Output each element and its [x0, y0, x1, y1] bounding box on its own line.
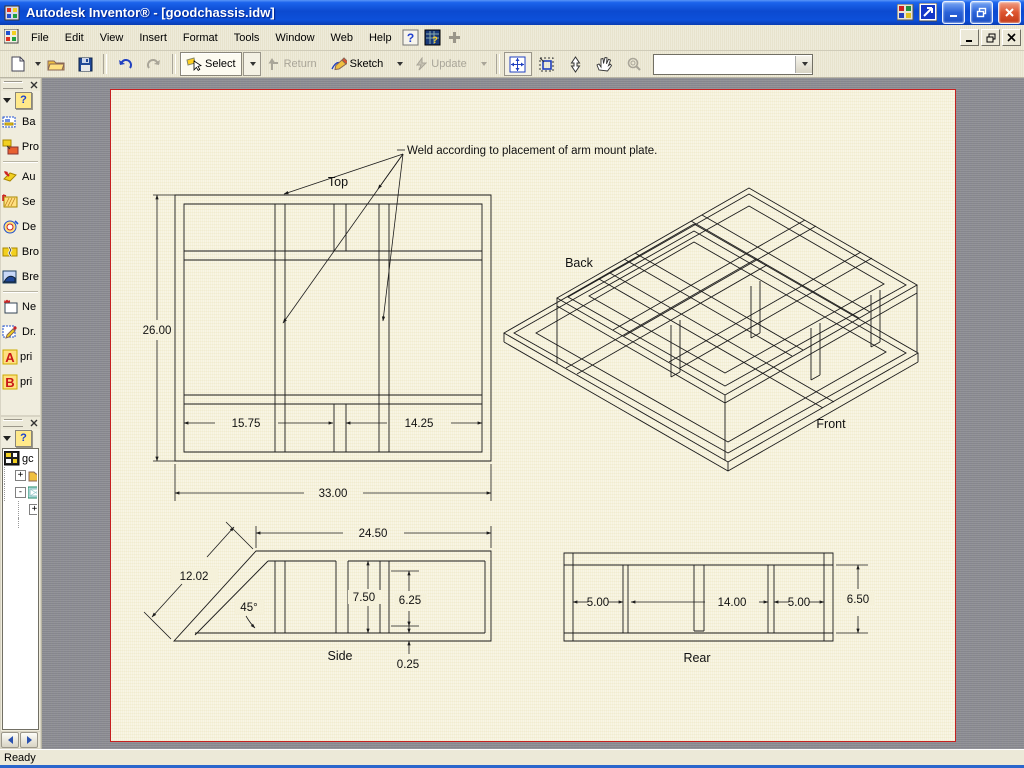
update-button[interactable]: Update: [409, 52, 472, 76]
document-icon[interactable]: [4, 29, 19, 47]
tree-node-sheet[interactable]: -: [4, 484, 37, 501]
dim-0-25: 0.25: [397, 659, 419, 671]
collapse-icon[interactable]: -: [15, 487, 26, 498]
top-view-geometry: [175, 195, 491, 461]
tool-auxiliary-view[interactable]: Au: [1, 164, 40, 189]
dim-26: 26.00: [143, 325, 172, 337]
mdi-close-button[interactable]: [1002, 29, 1021, 46]
pan-hand-icon: [596, 56, 613, 72]
panel-divider: [3, 161, 38, 162]
new-sheet-icon: [2, 299, 20, 315]
open-folder-icon: [47, 57, 65, 71]
panel-subheader: ?: [1, 429, 40, 447]
update-dropdown[interactable]: [474, 52, 492, 76]
restore-button[interactable]: [970, 1, 993, 24]
browser-panel: ? gc + -: [0, 416, 41, 749]
menu-edit[interactable]: Edit: [57, 29, 92, 47]
mdi-minimize-button[interactable]: [960, 29, 979, 46]
graphics-canvas[interactable]: 26.00 15.75 14.25 33.00 Top Weld accordi…: [42, 78, 1024, 749]
window-title: Autodesk Inventor® - [goodchassis.idw]: [26, 5, 891, 20]
sketch-pencil-icon: [330, 57, 347, 72]
detail-view-icon: [2, 219, 20, 235]
tool-breakout-view[interactable]: Bre: [1, 264, 40, 289]
zoom-all-icon: [509, 56, 526, 73]
update-label: Update: [431, 58, 466, 70]
new-file-button[interactable]: [4, 52, 32, 76]
save-floppy-icon: [78, 57, 93, 72]
redo-icon: [146, 57, 162, 71]
update-lightning-icon: [415, 57, 428, 71]
menu-tools[interactable]: Tools: [226, 29, 268, 47]
folder-icon: [28, 470, 37, 482]
dim-24-50: 24.50: [359, 528, 388, 540]
panel-subheader: ?: [1, 91, 40, 109]
dim-12-02: 12.02: [180, 571, 209, 583]
dim-6-25: 6.25: [399, 595, 421, 607]
zoom-select-icon: [626, 56, 642, 72]
select-dropdown[interactable]: [243, 52, 261, 76]
notebook-icon[interactable]: ?: [423, 28, 443, 47]
return-button[interactable]: Return: [262, 52, 323, 76]
dim-14-25: 14.25: [405, 418, 434, 430]
combo-dropdown[interactable]: [795, 56, 812, 73]
breakout-view-icon: [2, 269, 20, 285]
panel-close-icon[interactable]: [30, 419, 38, 427]
drawing-doc-icon: [4, 451, 20, 466]
top-view-label: Top: [328, 175, 348, 189]
sketch-label: Sketch: [350, 58, 384, 70]
app-icon: [3, 4, 21, 22]
minimize-button[interactable]: [942, 1, 965, 24]
panel-grip[interactable]: [3, 82, 23, 89]
view-scale-combo[interactable]: [653, 54, 813, 75]
menu-insert[interactable]: Insert: [131, 29, 175, 47]
zoom-select-button[interactable]: [620, 52, 648, 76]
tree-root[interactable]: gc: [4, 450, 37, 467]
tool-detail-view[interactable]: De: [1, 214, 40, 239]
select-label: Select: [205, 58, 236, 70]
sketch-dropdown[interactable]: [390, 52, 408, 76]
dim-33: 33.00: [319, 488, 348, 500]
save-button[interactable]: [71, 52, 99, 76]
menu-help[interactable]: Help: [361, 29, 400, 47]
menu-file[interactable]: File: [23, 29, 57, 47]
panel-close-icon[interactable]: [30, 81, 38, 89]
undo-icon: [117, 57, 133, 71]
open-button[interactable]: [42, 52, 70, 76]
tree-node-folder[interactable]: +: [4, 467, 37, 484]
toolbar-separator: [172, 54, 176, 74]
zoom-dynamic-button[interactable]: [562, 52, 590, 76]
section-view-icon: [2, 194, 20, 210]
top-view-dimensions: [153, 150, 491, 501]
side-view-label: Side: [327, 649, 352, 663]
help-icon[interactable]: ?: [401, 28, 421, 47]
tool-new-sheet[interactable]: Ne: [1, 294, 40, 319]
return-label: Return: [284, 58, 317, 70]
tool-section-view[interactable]: Se: [1, 189, 40, 214]
menu-format[interactable]: Format: [175, 29, 226, 47]
plus-icon: [445, 28, 465, 47]
tree-hscrollbar[interactable]: [1, 731, 40, 748]
panel-header[interactable]: [1, 417, 40, 429]
iso-view-geometry: [504, 188, 918, 471]
format-a-icon: A: [2, 349, 18, 365]
tree-node-child[interactable]: +: [4, 501, 37, 518]
panel-header[interactable]: [1, 79, 40, 91]
zoom-dynamic-icon: [568, 56, 583, 73]
undo-button[interactable]: [111, 52, 139, 76]
tool-format-b[interactable]: B pri: [1, 369, 40, 394]
dim-15-75: 15.75: [232, 418, 261, 430]
main-toolbar: Select Return Sketch Update: [0, 51, 1024, 78]
titlebar: Autodesk Inventor® - [goodchassis.idw]: [0, 0, 1024, 25]
dim-6-50: 6.50: [847, 594, 869, 606]
palette-tray-icon[interactable]: [896, 4, 914, 22]
expand-icon[interactable]: +: [29, 504, 37, 515]
tool-projected-view[interactable]: Pro: [1, 134, 40, 159]
panel-divider: [3, 291, 38, 292]
zoom-window-button[interactable]: [533, 52, 561, 76]
new-file-dropdown[interactable]: [35, 62, 41, 66]
broken-view-icon: [2, 244, 20, 260]
dim-7-50: 7.50: [353, 592, 375, 604]
panel-help-icon[interactable]: ?: [15, 92, 32, 109]
drawing-sheet[interactable]: 26.00 15.75 14.25 33.00 Top Weld accordi…: [110, 89, 956, 742]
close-button[interactable]: [998, 1, 1021, 24]
dim-45: 45°: [240, 602, 257, 614]
tree-branch-line: [4, 518, 37, 528]
expand-icon[interactable]: +: [15, 470, 26, 481]
panel-grip[interactable]: [3, 420, 23, 427]
return-arrow-icon: [268, 57, 281, 71]
new-file-icon: [11, 56, 25, 72]
weld-note: Weld according to placement of arm mount…: [407, 145, 657, 157]
tool-base-view[interactable]: Ba: [1, 109, 40, 134]
iso-back-label: Back: [565, 256, 594, 270]
select-tool-button[interactable]: Select: [180, 52, 242, 76]
base-view-icon: [2, 114, 20, 130]
tool-draft-view[interactable]: Dr.: [1, 319, 40, 344]
scroll-left-icon[interactable]: [1, 732, 19, 748]
tree-root-label: gc: [22, 453, 34, 465]
menu-view[interactable]: View: [92, 29, 132, 47]
menu-web[interactable]: Web: [323, 29, 361, 47]
dim-14: 14.00: [718, 597, 747, 609]
select-cursor-icon: [186, 57, 202, 72]
toolbar-separator: [103, 54, 107, 74]
pan-button[interactable]: [591, 52, 619, 76]
statusbar: Ready: [0, 749, 1024, 765]
status-text: Ready: [4, 752, 36, 764]
mdi-restore-button[interactable]: [981, 29, 1000, 46]
toolbar-separator: [496, 54, 500, 74]
side-view-geometry: [174, 551, 491, 641]
tool-format-a[interactable]: A pri: [1, 344, 40, 369]
scroll-right-icon[interactable]: [20, 732, 38, 748]
panel-help-icon[interactable]: ?: [15, 430, 32, 447]
menu-window[interactable]: Window: [267, 29, 322, 47]
format-b-icon: B: [2, 374, 18, 390]
redo-button[interactable]: [140, 52, 168, 76]
svg-text:A: A: [5, 350, 15, 365]
menubar: File Edit View Insert Format Tools Windo…: [0, 25, 1024, 51]
iso-front-label: Front: [816, 417, 846, 431]
rear-view-label: Rear: [683, 651, 710, 665]
drawing-views-panel: ? Ba Pro Au Se: [0, 78, 41, 416]
tool-broken-view[interactable]: Bro: [1, 239, 40, 264]
svg-text:B: B: [5, 375, 14, 390]
svg-text:?: ?: [407, 31, 414, 45]
drawing-graphics: 26.00 15.75 14.25 33.00 Top Weld accordi…: [111, 90, 955, 741]
svg-text:?: ?: [432, 35, 438, 45]
browser-tree: gc + - +: [2, 448, 39, 730]
panel-flyout-icon[interactable]: [3, 436, 11, 441]
sheet-icon: [28, 486, 37, 499]
auxiliary-view-icon: [2, 169, 20, 185]
zoom-all-button[interactable]: [504, 52, 532, 76]
fullscreen-tray-icon[interactable]: [919, 4, 937, 22]
workspace: ? Ba Pro Au Se: [0, 78, 1024, 749]
sketch-button[interactable]: Sketch: [324, 52, 390, 76]
left-panels: ? Ba Pro Au Se: [0, 78, 42, 749]
dim-5-right: 5.00: [788, 597, 810, 609]
projected-view-icon: [2, 139, 20, 155]
dim-5-left: 5.00: [587, 597, 609, 609]
zoom-window-icon: [538, 56, 555, 73]
app-window: Autodesk Inventor® - [goodchassis.idw] F…: [0, 0, 1024, 768]
draft-view-icon: [2, 324, 20, 340]
panel-flyout-icon[interactable]: [3, 98, 11, 103]
